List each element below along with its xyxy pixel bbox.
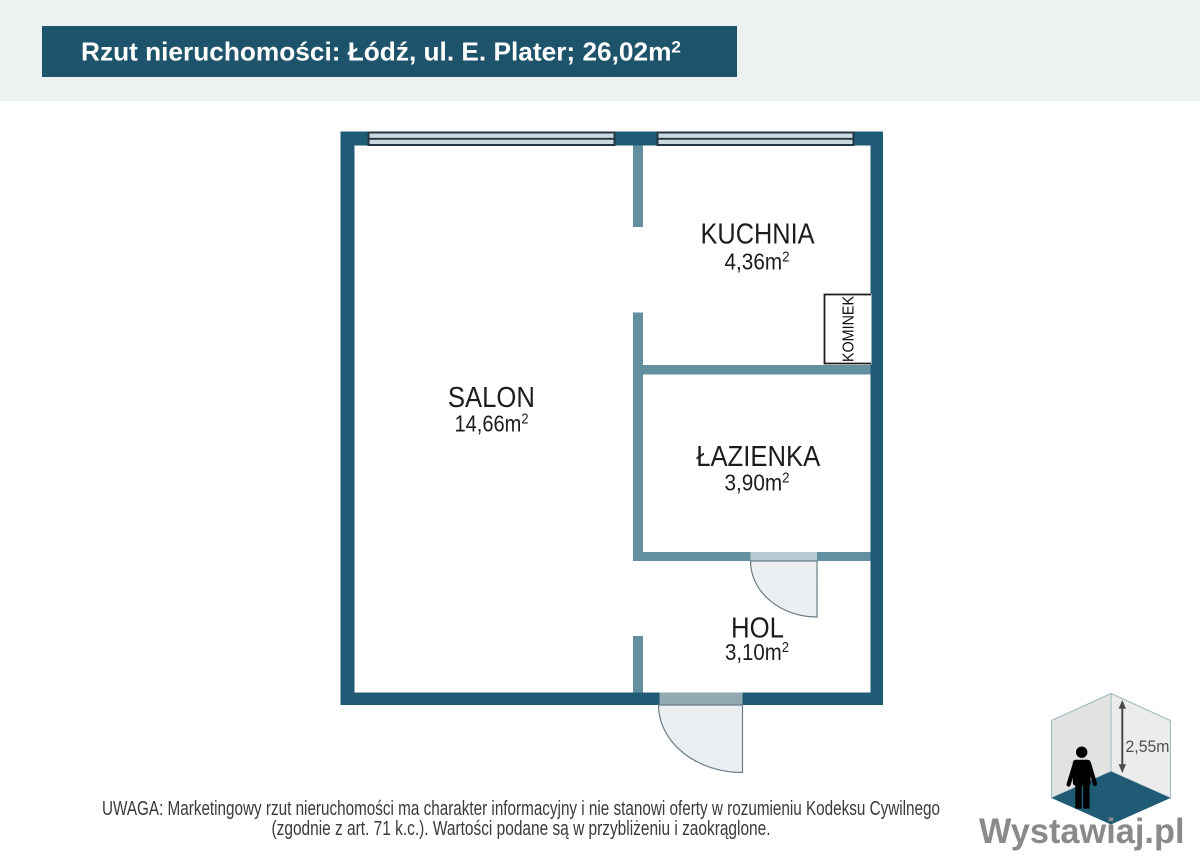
svg-text:Rzut nieruchomości: Łódź, ul.: Rzut nieruchomości: Łódź, ul. E. Plater;…	[81, 37, 681, 67]
svg-text:ŁAZIENKA: ŁAZIENKA	[696, 441, 821, 473]
svg-text:KUCHNIA: KUCHNIA	[701, 218, 816, 250]
svg-text:UWAGA: Marketingowy rzut nieru: UWAGA: Marketingowy rzut nieruchomości m…	[102, 798, 940, 820]
svg-text:4,36m2: 4,36m2	[725, 248, 790, 274]
svg-text:KOMINEK: KOMINEK	[841, 295, 858, 362]
svg-text:3,90m2: 3,90m2	[725, 469, 790, 495]
svg-text:Wystawiaj.pl: Wystawiaj.pl	[979, 812, 1185, 851]
svg-text:3,10m2: 3,10m2	[725, 639, 789, 665]
svg-text:14,66m2: 14,66m2	[455, 411, 529, 437]
svg-text:2,55m: 2,55m	[1126, 737, 1170, 756]
svg-text:(zgodnie z art. 71 k.c.). Wart: (zgodnie z art. 71 k.c.). Wartości podan…	[272, 818, 771, 840]
svg-text:SALON: SALON	[448, 382, 535, 414]
